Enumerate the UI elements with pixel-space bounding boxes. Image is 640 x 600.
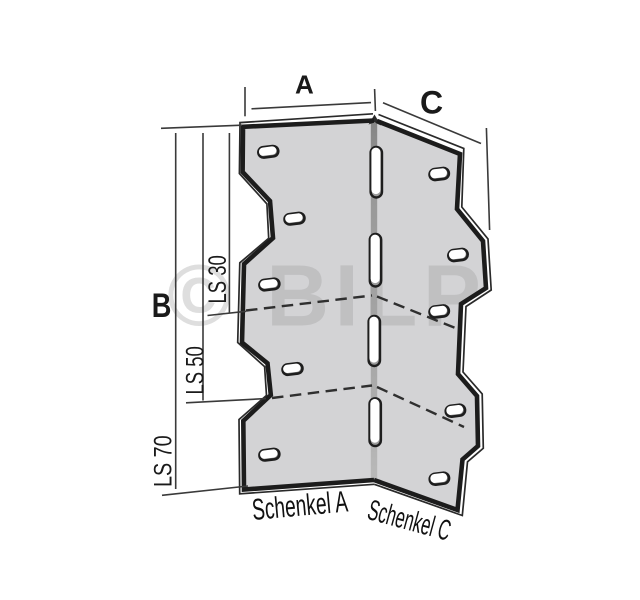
svg-text:LS 50: LS 50 <box>181 346 209 394</box>
svg-text:LS 70: LS 70 <box>149 435 177 487</box>
svg-text:LS 30: LS 30 <box>203 255 231 303</box>
svg-text:A: A <box>295 70 314 100</box>
svg-text:B: B <box>152 286 172 325</box>
svg-text:C: C <box>420 84 443 120</box>
